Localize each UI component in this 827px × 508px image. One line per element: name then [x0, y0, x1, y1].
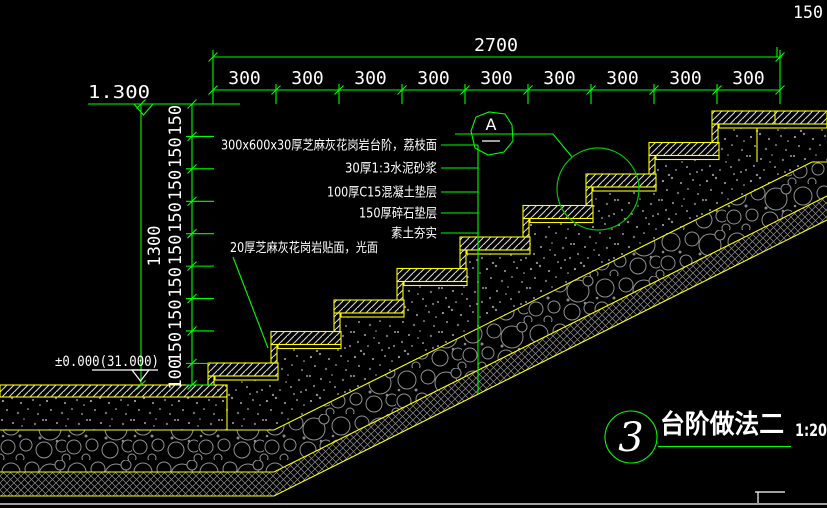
left-dim-label-8: 100: [166, 359, 186, 390]
left-dim-label-1: 150: [166, 137, 186, 168]
top-dimension-chain: 2700 300300300300300300300300300: [209, 35, 785, 104]
title-text: 台阶做法二: [660, 409, 784, 440]
top-dim-label-7: 300: [669, 68, 702, 89]
riser-callout-text: 20厚芝麻灰花岗岩贴面，光面: [230, 240, 378, 256]
lower-level-value: ±0.000(31.000): [55, 354, 159, 370]
left-dim-label-4: 150: [166, 235, 186, 266]
top-dim-label-5: 300: [543, 68, 576, 89]
callout-text-3: 150厚碎石垫层: [359, 206, 437, 222]
riser-veneer: [523, 219, 529, 238]
tread-slab: [649, 143, 719, 156]
riser-callout-leader: [233, 257, 268, 348]
mortar-bed: [341, 313, 404, 317]
title-block: 3 台阶做法二 1:20: [605, 409, 827, 463]
mortar-bed: [404, 282, 467, 286]
detail-number: 3: [618, 415, 643, 461]
top-dim-total: 2700: [474, 35, 518, 56]
top-dim-label-6: 300: [606, 68, 639, 89]
frame-corner: [755, 492, 785, 503]
top-dim-label-2: 300: [354, 68, 387, 89]
tread-slab: [208, 363, 278, 376]
riser-veneer: [712, 124, 718, 143]
callout-text-1: 30厚1:3水泥砂浆: [345, 162, 437, 177]
corner-dim-value: 150: [793, 3, 823, 23]
detail-letter: A: [486, 115, 497, 134]
cad-viewport[interactable]: A 20厚芝麻灰花岗岩贴面，光面 300x600x30厚芝麻灰花岗岩台阶，荔枝面…: [0, 0, 827, 508]
riser-veneer: [649, 156, 655, 175]
left-dim-total: 1300: [145, 226, 165, 267]
lower-pavement: [0, 385, 227, 397]
landing-slab: [712, 111, 827, 124]
mortar-bed: [593, 187, 656, 191]
left-dim-label-5: 150: [166, 267, 186, 298]
tread-slab: [586, 174, 656, 187]
riser-veneer: [397, 282, 403, 301]
riser-veneer: [586, 187, 592, 206]
callout-text-4: 素土夯实: [391, 227, 437, 242]
top-dim-label-0: 300: [228, 68, 261, 89]
callout-text-2: 100厚C15混凝土垫层: [327, 185, 437, 201]
riser-veneer: [460, 250, 466, 269]
upper-level-value: 1.300: [88, 82, 150, 103]
tread-slab: [271, 332, 341, 345]
tread-slab: [334, 300, 404, 313]
mortar-bed: [467, 250, 530, 254]
mortar-bed: [656, 156, 719, 160]
mortar-bed: [530, 219, 593, 223]
cad-canvas[interactable]: A 20厚芝麻灰花岗岩贴面，光面 300x600x30厚芝麻灰花岗岩台阶，荔枝面…: [0, 0, 827, 508]
upper-level-triangle: [134, 104, 153, 115]
left-dim-label-6: 150: [166, 299, 186, 330]
mortar-bed: [215, 376, 278, 380]
riser-veneer: [208, 376, 214, 385]
left-dim-label-0: 150: [166, 105, 186, 136]
riser-veneer: [271, 345, 277, 364]
top-dim-label-3: 300: [417, 68, 450, 89]
title-scale: 1:20: [795, 421, 827, 441]
left-dim-label-3: 150: [166, 202, 186, 233]
left-dimension-chain: 1300 150150150150150150150150100: [137, 100, 215, 390]
tread-slab: [460, 237, 530, 250]
tread-slab: [397, 269, 467, 282]
ground-layers: [0, 128, 827, 496]
mortar-bed: [278, 345, 341, 349]
mortar-bed: [719, 124, 827, 128]
riser-veneer: [334, 313, 340, 332]
top-dim-label-4: 300: [480, 68, 513, 89]
top-dim-label-8: 300: [732, 68, 765, 89]
left-dim-label-7: 150: [166, 332, 186, 363]
callout-text-0: 300x600x30厚芝麻灰花岗岩台阶，荔枝面: [221, 138, 437, 154]
top-dim-label-1: 300: [291, 68, 324, 89]
left-dim-label-2: 150: [166, 170, 186, 201]
tread-slab: [523, 206, 593, 219]
